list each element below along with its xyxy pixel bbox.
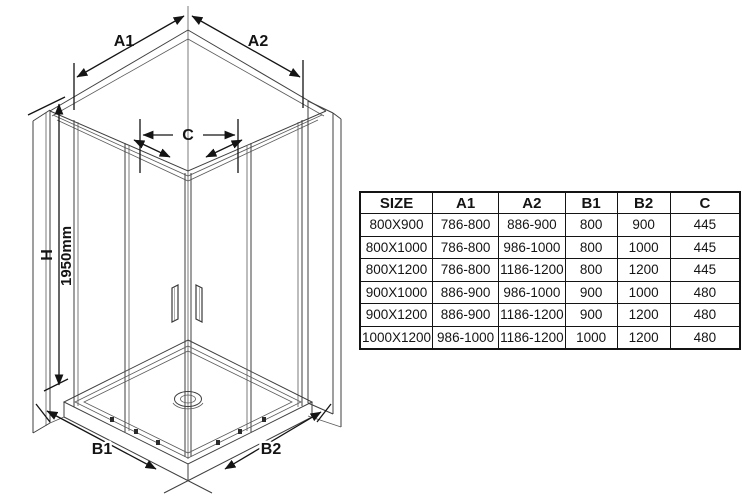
dim-b1-label: B1 (92, 441, 113, 458)
table-cell: 800 (565, 236, 617, 259)
table-cell: 900X1000 (360, 281, 433, 304)
table-row: 900X1200 886-900 1186-1200 900 1200 480 (360, 304, 740, 327)
table-cell: 900X1200 (360, 304, 433, 327)
table-cell: 986-1000 (433, 326, 499, 349)
table-row: 900X1000 886-900 986-1000 900 1000 480 (360, 281, 740, 304)
shower-enclosure-diagram: A1 A2 C H 1950mm B1 (0, 0, 362, 500)
right-wall (308, 101, 341, 427)
table-cell: 1000X1200 (360, 326, 433, 349)
table-cell: 445 (670, 214, 740, 237)
table-cell: 1186-1200 (499, 326, 566, 349)
table-cell: 1000 (565, 326, 617, 349)
table-cell: 886-900 (433, 281, 499, 304)
table-cell: 886-900 (499, 214, 566, 237)
table-cell: 1186-1200 (499, 304, 566, 327)
table-cell: 886-900 (433, 304, 499, 327)
table-cell: 786-800 (433, 214, 499, 237)
table-cell: 480 (670, 281, 740, 304)
table-cell: 986-1000 (499, 236, 566, 259)
table-cell: 445 (670, 236, 740, 259)
table-cell: 800X1000 (360, 236, 433, 259)
table-header-row: SIZE A1 A2 B1 B2 C (360, 192, 740, 214)
table-cell: 480 (670, 326, 740, 349)
dim-a2: A2 (192, 16, 303, 108)
dim-a1-label: A1 (114, 33, 135, 50)
table-row: 800X900 786-800 886-900 800 900 445 (360, 214, 740, 237)
dim-b2-label: B2 (261, 441, 282, 458)
table-cell: 800 (565, 214, 617, 237)
shower-enclosure-spec-sheet: A1 A2 C H 1950mm B1 (0, 0, 742, 500)
table-cell: 800X1200 (360, 259, 433, 282)
table-cell: 900 (565, 304, 617, 327)
table-cell: 900 (617, 214, 670, 237)
col-header-a2: A2 (499, 192, 566, 214)
dim-a1: A1 (74, 16, 184, 110)
table-row: 800X1000 786-800 986-1000 800 1000 445 (360, 236, 740, 259)
table-cell: 786-800 (433, 236, 499, 259)
table-cell: 786-800 (433, 259, 499, 282)
col-header-a1: A1 (433, 192, 499, 214)
table-cell: 480 (670, 304, 740, 327)
col-header-c: C (670, 192, 740, 214)
table-cell: 900 (565, 281, 617, 304)
door-handle-icon (172, 285, 202, 322)
table-cell: 800X900 (360, 214, 433, 237)
table-cell: 1200 (617, 326, 670, 349)
table-cell: 1000 (617, 236, 670, 259)
dim-h-label: H (39, 249, 56, 261)
table-cell: 445 (670, 259, 740, 282)
size-spec-table: SIZE A1 A2 B1 B2 C 800X900 786-800 886-9… (359, 191, 741, 350)
table-row: 1000X1200 986-1000 1186-1200 1000 1200 4… (360, 326, 740, 349)
dim-c: C (140, 119, 238, 173)
table-cell: 1200 (617, 304, 670, 327)
col-header-b2: B2 (617, 192, 670, 214)
table-row: 800X1200 786-800 1186-1200 800 1200 445 (360, 259, 740, 282)
col-header-b1: B1 (565, 192, 617, 214)
table-cell: 986-1000 (499, 281, 566, 304)
col-header-size: SIZE (360, 192, 433, 214)
dim-b1: B1 (36, 404, 156, 469)
dim-h: H 1950mm (28, 97, 75, 391)
table-cell: 1000 (617, 281, 670, 304)
dim-a2-label: A2 (248, 33, 269, 50)
dim-height-label: 1950mm (58, 226, 75, 286)
table-cell: 1200 (617, 259, 670, 282)
dim-c-label: C (182, 127, 194, 144)
table-cell: 800 (565, 259, 617, 282)
table-cell: 1186-1200 (499, 259, 566, 282)
